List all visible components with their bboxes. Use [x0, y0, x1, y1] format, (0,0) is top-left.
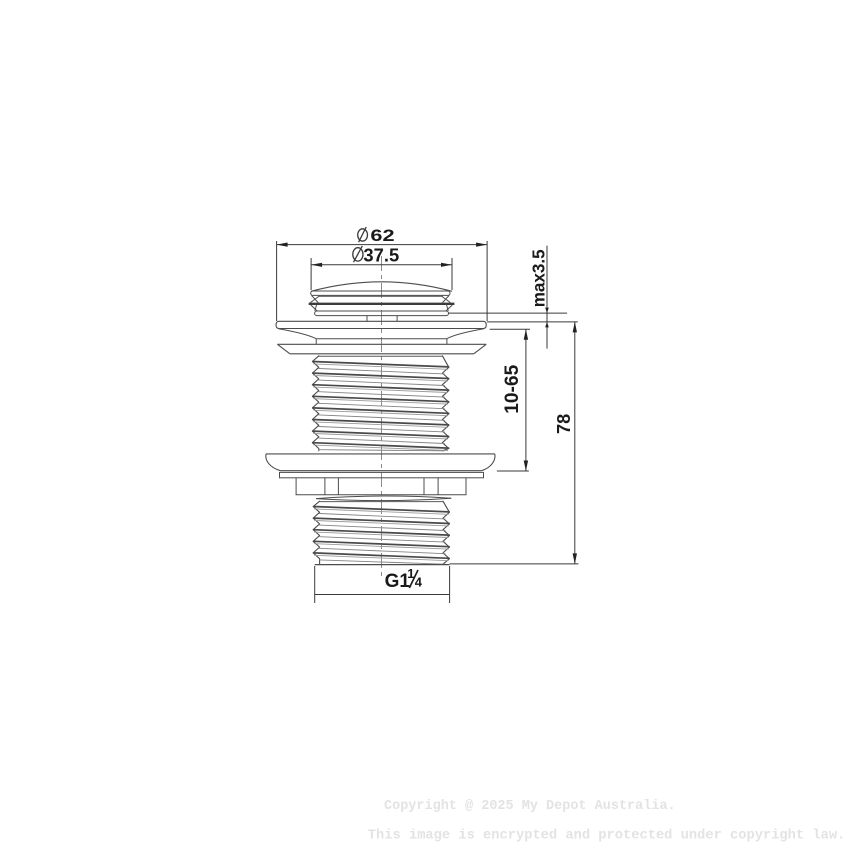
svg-text:78: 78 — [554, 414, 574, 434]
svg-text:62: 62 — [370, 226, 394, 245]
svg-text:This image is encrypted and pr: This image is encrypted and protected un… — [368, 828, 846, 844]
svg-text:Copyright @ 2025 My Depot Aust: Copyright @ 2025 My Depot Australia. — [384, 799, 676, 814]
svg-text:4: 4 — [415, 575, 423, 590]
svg-text:10-65: 10-65 — [502, 364, 523, 413]
svg-text:max3.5: max3.5 — [529, 249, 548, 307]
svg-text:37.5: 37.5 — [363, 244, 399, 265]
